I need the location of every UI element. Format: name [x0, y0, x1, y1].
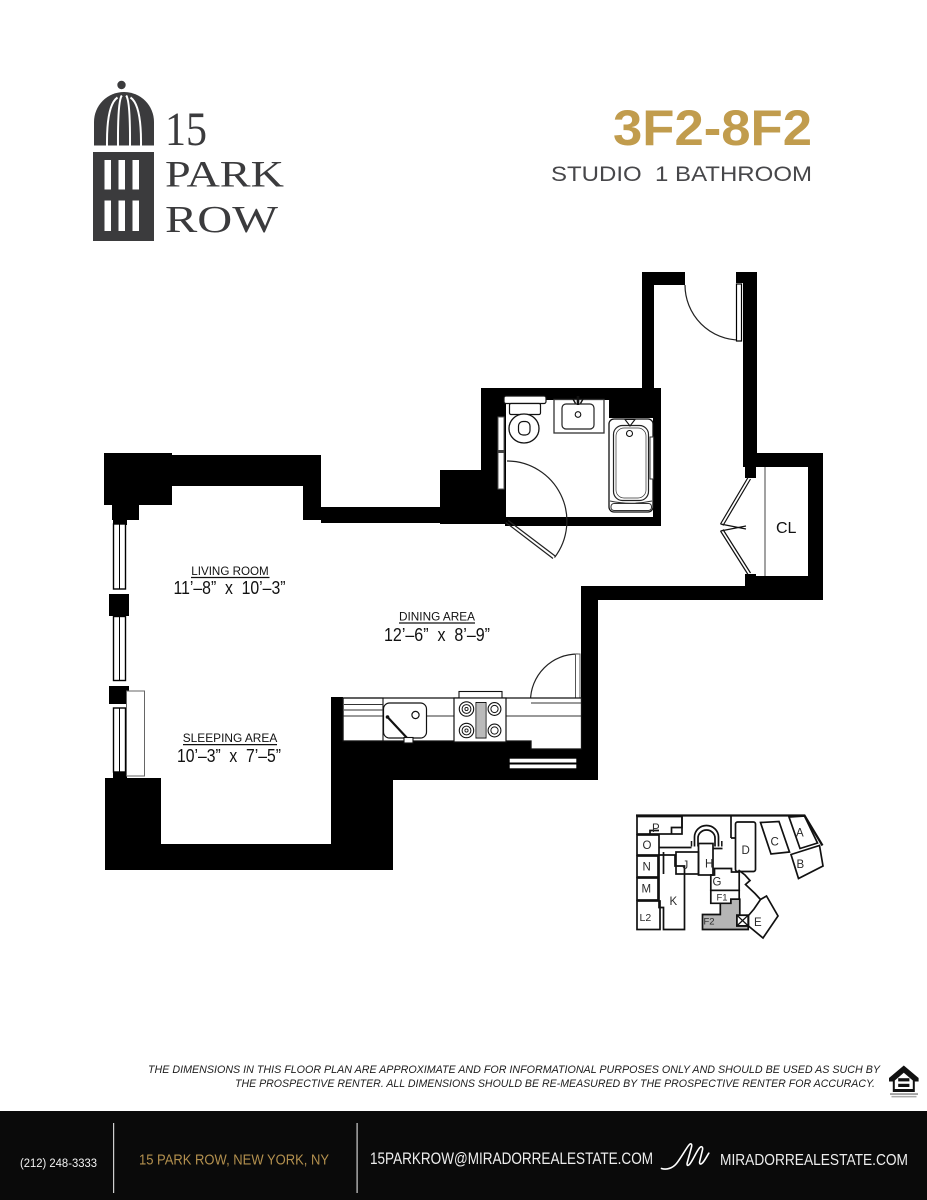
svg-text:10’–3” x 7’–5”: 10’–3” x 7’–5”	[177, 746, 281, 766]
svg-text:C: C	[771, 837, 779, 849]
svg-text:K: K	[670, 896, 678, 908]
svg-text:12’–6” x 8’–9”: 12’–6” x 8’–9”	[384, 625, 490, 645]
svg-text:ROW: ROW	[165, 199, 278, 241]
svg-text:A: A	[796, 828, 804, 840]
svg-text:15: 15	[165, 103, 207, 156]
svg-text:SLEEPING AREA: SLEEPING AREA	[183, 733, 278, 745]
svg-text:11’–8” x 10’–3”: 11’–8” x 10’–3”	[174, 578, 286, 598]
svg-text:M: M	[642, 884, 652, 896]
svg-text:MIRADORREALESTATE.COM: MIRADORREALESTATE.COM	[720, 1152, 908, 1169]
svg-text:THE PROSPECTIVE RENTER. ALL DI: THE PROSPECTIVE RENTER. ALL DIMENSIONS S…	[235, 1078, 875, 1090]
svg-text:F1: F1	[717, 893, 728, 904]
svg-text:STUDIO 1 BATHROOM: STUDIO 1 BATHROOM	[551, 163, 812, 186]
svg-text:E: E	[754, 917, 762, 929]
svg-text:DINING AREA: DINING AREA	[399, 612, 475, 624]
svg-text:G: G	[713, 877, 722, 889]
svg-text:J: J	[683, 860, 689, 872]
svg-text:LIVING ROOM: LIVING ROOM	[191, 566, 269, 578]
svg-text:THE DIMENSIONS IN THIS FLOOR P: THE DIMENSIONS IN THIS FLOOR PLAN ARE AP…	[148, 1064, 881, 1076]
svg-text:CL: CL	[776, 520, 797, 537]
svg-text:15PARKROW@MIRADORREALESTATE.CO: 15PARKROW@MIRADORREALESTATE.COM	[370, 1150, 653, 1168]
svg-text:N: N	[643, 862, 651, 874]
svg-text:B: B	[797, 859, 805, 871]
svg-text:15 PARK ROW, NEW YORK, NY: 15 PARK ROW, NEW YORK, NY	[139, 1153, 329, 1169]
svg-text:(212) 248-3333: (212) 248-3333	[20, 1158, 97, 1170]
svg-text:P: P	[652, 823, 660, 835]
svg-text:O: O	[643, 840, 652, 852]
svg-text:D: D	[742, 845, 750, 857]
svg-text:L2: L2	[640, 912, 652, 924]
svg-text:3F2-8F2: 3F2-8F2	[613, 100, 812, 156]
svg-text:F2: F2	[704, 917, 715, 928]
svg-text:H: H	[705, 859, 713, 871]
svg-text:PARK: PARK	[165, 155, 284, 196]
